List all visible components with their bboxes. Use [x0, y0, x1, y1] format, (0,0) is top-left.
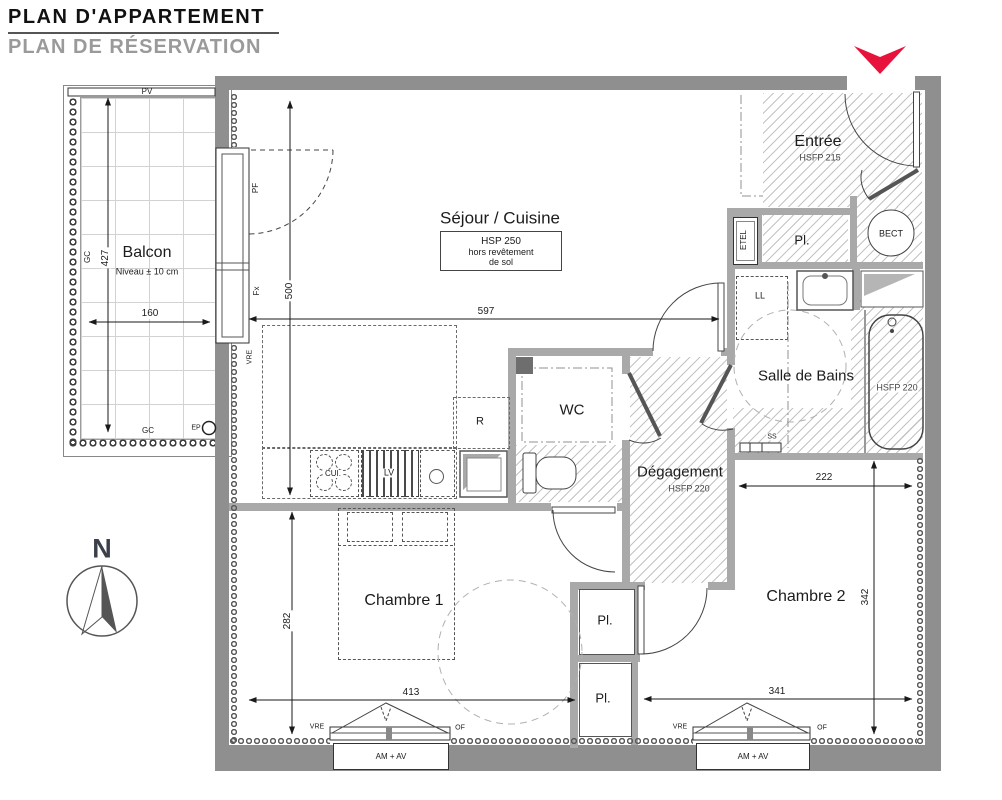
wall-hall-right-b	[727, 428, 735, 583]
kitchen-sink-icon	[460, 451, 507, 497]
insulation-bottom-a	[229, 737, 330, 745]
bath-sink-icon	[797, 271, 853, 310]
wall-wc-right-a	[622, 350, 630, 374]
dim-bedroom1-282: 282	[283, 611, 293, 632]
wall-wc-right-b	[622, 440, 630, 583]
compass-north-label: N	[92, 536, 112, 563]
balcony-label: Balcon	[123, 245, 172, 261]
bedroom2-vre: VRE	[673, 724, 687, 731]
bedroom1-of: OF	[455, 725, 465, 732]
label-gc-left: GC	[84, 251, 92, 263]
bedroom1-vre: VRE	[310, 724, 324, 731]
bedroom1-door-arc	[553, 510, 615, 572]
entry-closet-label: Pl.	[794, 234, 809, 247]
closet-upper-label: Pl.	[597, 614, 612, 627]
wall-closet-column-left	[570, 582, 578, 748]
apartment-floor-plan: PLAN D'APPARTEMENT PLAN DE RÉSERVATION	[0, 0, 1002, 800]
entrance-arrow-icon	[854, 46, 906, 74]
label-bect: BECT	[879, 230, 903, 239]
insulation-right	[916, 457, 925, 745]
duct-icon	[516, 357, 533, 374]
dim-bedroom1-413: 413	[401, 688, 422, 698]
living-hsp-line2: hors revêtement	[468, 247, 533, 257]
entry-hsfp: HSFP 215	[799, 154, 840, 163]
bedroom2-am-av: AM + AV	[738, 752, 769, 761]
entry-floor-hatch	[763, 93, 922, 207]
wc-hatch	[516, 445, 622, 502]
bedroom2-label: Chambre 2	[766, 589, 845, 605]
wall-hall-bottom-b	[708, 582, 735, 590]
bed-pillow-right	[402, 512, 448, 542]
page-subtitle: PLAN DE RÉSERVATION	[8, 36, 261, 59]
small-basin-icon	[420, 450, 455, 497]
bedroom1-label: Chambre 1	[364, 593, 443, 609]
bedroom2-window-tag: AM + AV	[696, 743, 810, 770]
balcony-level-note: Niveau ± 10 cm	[116, 268, 178, 277]
insulation-left-bottom	[230, 344, 239, 744]
label-fridge: R	[476, 417, 484, 428]
bed-fold-line	[338, 545, 453, 546]
wall-pl-bect-divider	[850, 215, 857, 262]
wall-sink-tub-stub	[852, 262, 860, 310]
wall-top-right	[915, 76, 941, 90]
bedroom2-window	[693, 703, 810, 740]
compass-rose	[67, 566, 137, 636]
balcony-door-arc	[249, 150, 333, 234]
dim-balcony-427: 427	[101, 248, 111, 269]
living-hall-door-leaf	[718, 283, 724, 351]
wc-label: WC	[560, 403, 585, 418]
kitchen-zone-outline	[262, 325, 457, 449]
label-ll: LL	[755, 292, 765, 301]
label-pv: PV	[142, 88, 153, 96]
balcony-railing-bottom	[68, 438, 215, 448]
label-lv: LV	[383, 469, 395, 478]
page-title: PLAN D'APPARTEMENT	[8, 6, 279, 34]
bedroom1-window-tag: AM + AV	[333, 743, 449, 770]
dim-balcony-160: 160	[140, 309, 161, 319]
dim-bedroom2-342: 342	[861, 587, 871, 608]
wall-top-left	[215, 76, 847, 90]
label-gc-bottom: GC	[142, 427, 154, 435]
wall-closet-lower-right	[631, 662, 638, 745]
bath-label: Salle de Bains	[758, 369, 854, 384]
living-label: Séjour / Cuisine	[440, 210, 560, 227]
bathtub-hatch	[851, 300, 923, 453]
label-pf: PF	[252, 183, 260, 193]
insulation-bottom-b	[450, 737, 693, 745]
living-hsp-line1: HSP 250	[468, 236, 533, 247]
hall-hsfp: HSFP 220	[668, 485, 709, 494]
insulation-bottom-c	[810, 737, 917, 745]
balcony-railing-left	[68, 97, 78, 448]
dim-living-500: 500	[285, 281, 295, 302]
label-cui: CUI.	[324, 470, 342, 478]
bedroom1-window	[330, 703, 450, 740]
wall-closet-divider	[570, 655, 640, 662]
label-etel: ETEL	[740, 230, 748, 250]
living-hall-door-arc	[653, 283, 721, 351]
wall-wc-top	[508, 348, 653, 356]
dim-bedroom2-222: 222	[814, 473, 835, 483]
closet-lower-label: Pl.	[595, 692, 610, 705]
wall-bottom	[215, 745, 941, 771]
bathtub-zone-line	[864, 310, 866, 453]
washing-machine-outline	[736, 276, 788, 340]
wall-bath-bottom	[727, 453, 923, 460]
dim-living-597: 597	[476, 307, 497, 317]
wall-left	[215, 90, 229, 771]
hall-label: Dégagement	[637, 465, 723, 480]
entry-label: Entrée	[794, 134, 841, 150]
bed-pillow-left	[347, 512, 393, 542]
insulation-left-top	[230, 93, 239, 147]
bedroom1-door-leaf	[552, 507, 615, 513]
bedroom2-door-arc	[641, 588, 707, 654]
bedroom2-of: OF	[817, 725, 827, 732]
wall-bect-stub	[850, 196, 857, 216]
label-ss: SS	[766, 434, 777, 441]
living-hsp-box: HSP 250 hors revêtement de sol	[440, 231, 562, 271]
wall-right	[925, 90, 941, 771]
label-ep: EP	[191, 425, 200, 432]
bath-hsfp: HSFP 220	[875, 384, 918, 393]
bedroom1-am-av: AM + AV	[376, 752, 407, 761]
living-hsp-line3: de sol	[468, 257, 533, 267]
label-vre-wall: VRE	[247, 350, 254, 364]
label-fx: Fx	[253, 287, 261, 296]
dim-bedroom2-341: 341	[767, 687, 788, 697]
